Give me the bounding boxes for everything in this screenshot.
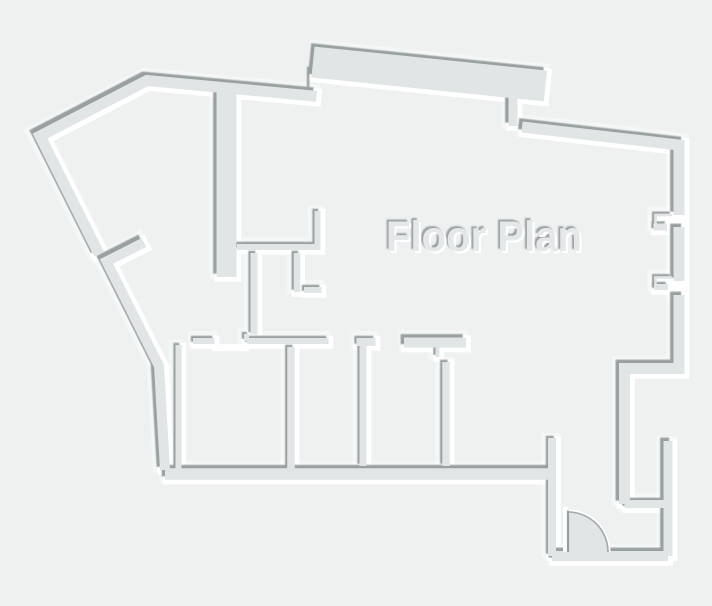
svg-text:Floor Plan: Floor Plan xyxy=(386,213,582,261)
